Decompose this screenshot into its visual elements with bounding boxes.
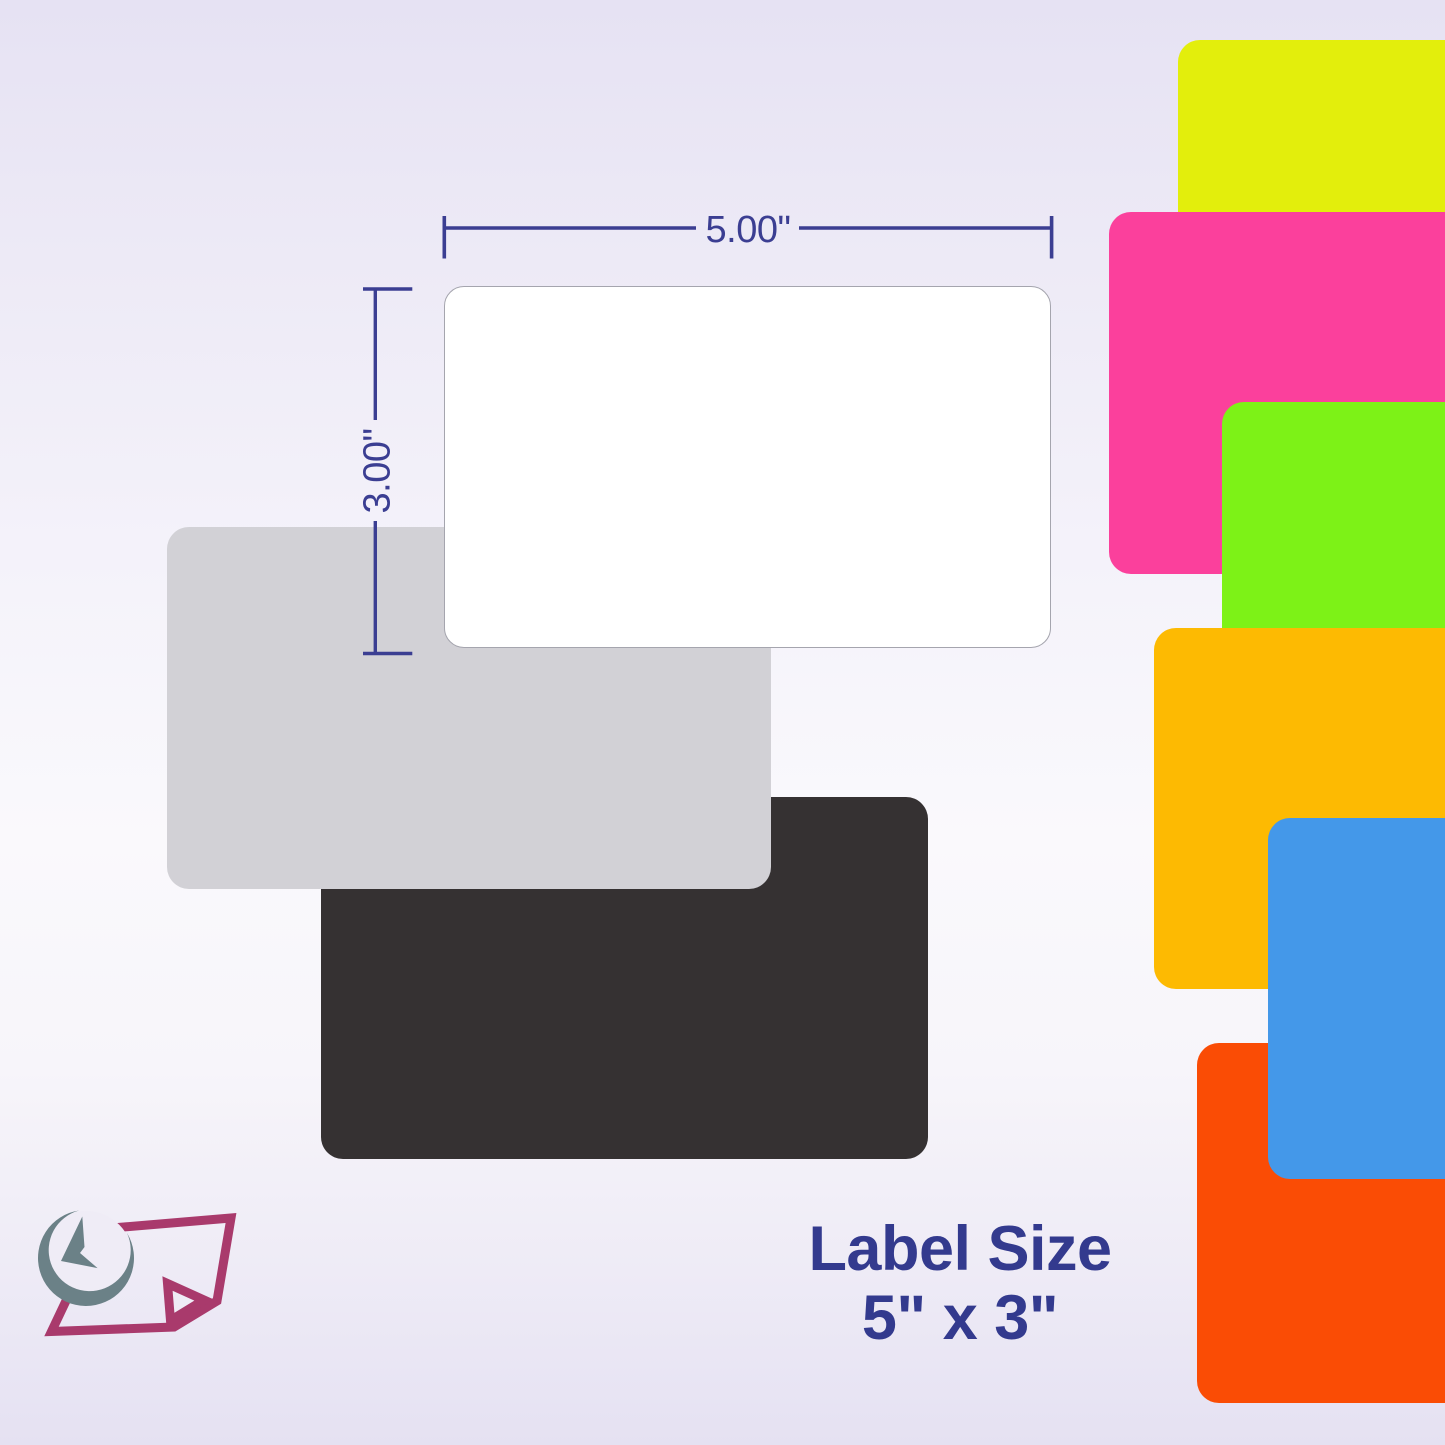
svg-text:5.00": 5.00" xyxy=(706,209,791,251)
svg-text:3.00": 3.00" xyxy=(356,429,398,514)
